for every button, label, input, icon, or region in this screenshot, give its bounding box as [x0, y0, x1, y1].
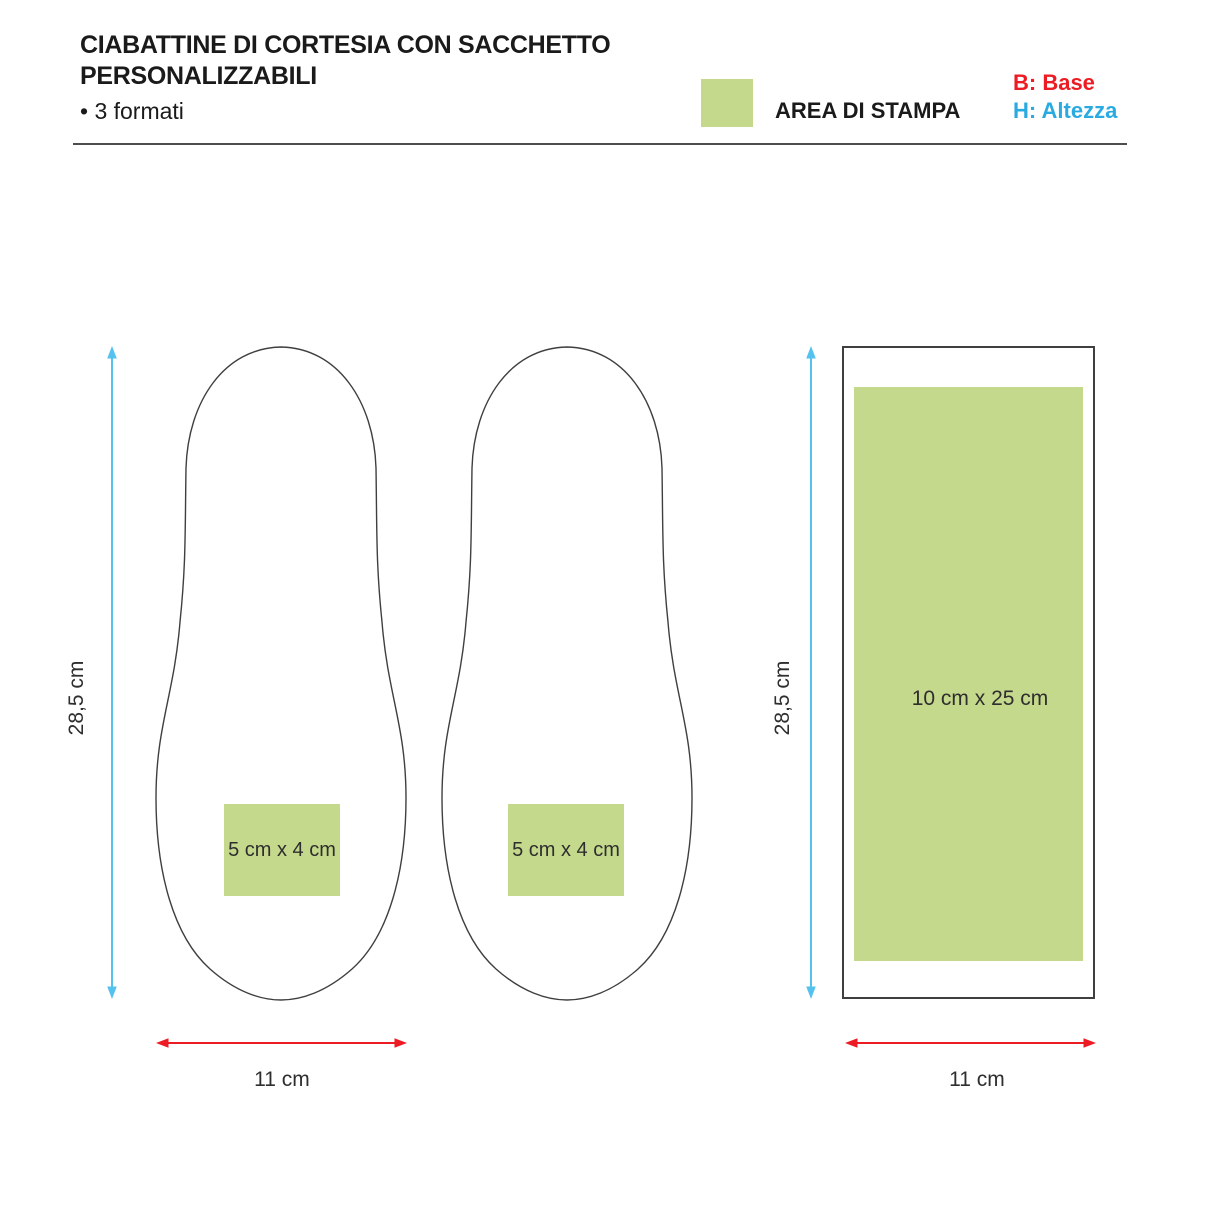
width-arrow-bag	[845, 1038, 1096, 1048]
bag-width-label: 11 cm	[927, 1068, 1027, 1092]
bag-print-area	[854, 387, 1083, 961]
slipper-outline-left	[156, 347, 406, 1000]
slipper-outline-right	[442, 347, 692, 1000]
slipper-left-print-area: 5 cm x 4 cm	[224, 804, 340, 896]
slippers-width-label: 11 cm	[232, 1068, 332, 1092]
bag-print-area-label: 10 cm x 25 cm	[912, 687, 1049, 711]
slippers-height-label: 28,5 cm	[65, 638, 89, 758]
slipper-left-print-area-label: 5 cm x 4 cm	[228, 839, 336, 862]
product-spec-sheet: CIABATTINE DI CORTESIA CON SACCHETTO PER…	[0, 0, 1214, 1214]
bag-height-label: 28,5 cm	[771, 638, 795, 758]
slipper-right-print-area: 5 cm x 4 cm	[508, 804, 624, 896]
height-arrow-slippers	[107, 346, 117, 999]
slipper-right-print-area-label: 5 cm x 4 cm	[512, 839, 620, 862]
height-arrow-bag	[806, 346, 816, 999]
width-arrow-slipper	[156, 1038, 407, 1048]
